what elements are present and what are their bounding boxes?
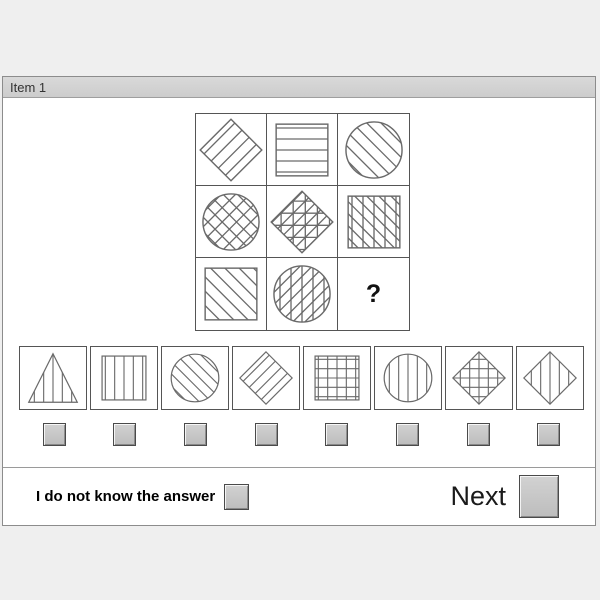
answer-options-row: [19, 346, 584, 410]
circle-vertical-shape: [380, 350, 436, 406]
option-cell-2: [90, 346, 158, 410]
answer-button-8[interactable]: [537, 423, 560, 446]
matrix-cell-3: [338, 114, 409, 186]
answer-buttons-row: [19, 421, 584, 447]
page: Item 1 ?: [0, 0, 600, 600]
option-cell-7: [445, 346, 513, 410]
dont-know-label: I do not know the answer: [36, 488, 215, 505]
answer-button-slot-4: [231, 421, 302, 447]
circle-cross-diag-shape: [198, 189, 264, 255]
diamond-diag-up-shape: [238, 350, 294, 406]
answer-button-3[interactable]: [184, 423, 207, 446]
diamond-diag-up-shape: [198, 117, 264, 183]
dont-know-button[interactable]: [224, 484, 249, 510]
diamond-vertical-shape: [522, 350, 578, 406]
answer-button-5[interactable]: [325, 423, 348, 446]
square-diag-down-shape: [198, 261, 264, 327]
dont-know-group: I do not know the answer: [36, 484, 249, 510]
answer-button-2[interactable]: [113, 423, 136, 446]
circle-vertical-diag-up-shape: [269, 261, 335, 327]
answer-button-slot-5: [302, 421, 373, 447]
matrix-cell-5: [267, 186, 338, 258]
footer-bar: I do not know the answer Next: [3, 468, 595, 525]
answer-button-slot-6: [372, 421, 443, 447]
matrix-cell-6: [338, 186, 409, 258]
matrix-cell-4: [196, 186, 267, 258]
matrix-cell-8: [267, 258, 338, 330]
diamond-grid-shape: [451, 350, 507, 406]
matrix-cell-1: [196, 114, 267, 186]
matrix-cell-7: [196, 258, 267, 330]
circle-diag-down-shape: [167, 350, 223, 406]
answer-button-slot-3: [160, 421, 231, 447]
item-title: Item 1: [10, 80, 46, 95]
next-group: Next: [450, 475, 559, 518]
answer-button-1[interactable]: [43, 423, 66, 446]
square-horizontal-shape: [269, 117, 335, 183]
option-cell-5: [303, 346, 371, 410]
answer-button-slot-1: [19, 421, 90, 447]
square-grid-shape: [309, 350, 365, 406]
puzzle-matrix: ?: [195, 113, 410, 331]
title-bar: Item 1: [3, 77, 595, 98]
matrix-cell-9: ?: [338, 258, 409, 330]
answer-button-4[interactable]: [255, 423, 278, 446]
square-vertical-diag-down-shape: [341, 189, 407, 255]
option-cell-4: [232, 346, 300, 410]
answer-button-6[interactable]: [396, 423, 419, 446]
option-cell-6: [374, 346, 442, 410]
circle-diag-down-shape: [341, 117, 407, 183]
option-cell-8: [516, 346, 584, 410]
test-window: Item 1 ?: [2, 76, 596, 526]
answer-button-slot-7: [443, 421, 514, 447]
diamond-grid-diag-shape: [269, 189, 335, 255]
question-mark: ?: [366, 282, 381, 307]
answer-button-7[interactable]: [467, 423, 490, 446]
triangle-vertical-shape: [25, 350, 81, 406]
next-button[interactable]: [519, 475, 559, 518]
square-vertical-shape: [96, 350, 152, 406]
matrix-cell-2: [267, 114, 338, 186]
option-cell-1: [19, 346, 87, 410]
next-label: Next: [450, 481, 506, 512]
answer-button-slot-8: [513, 421, 584, 447]
option-cell-3: [161, 346, 229, 410]
answer-button-slot-2: [90, 421, 161, 447]
